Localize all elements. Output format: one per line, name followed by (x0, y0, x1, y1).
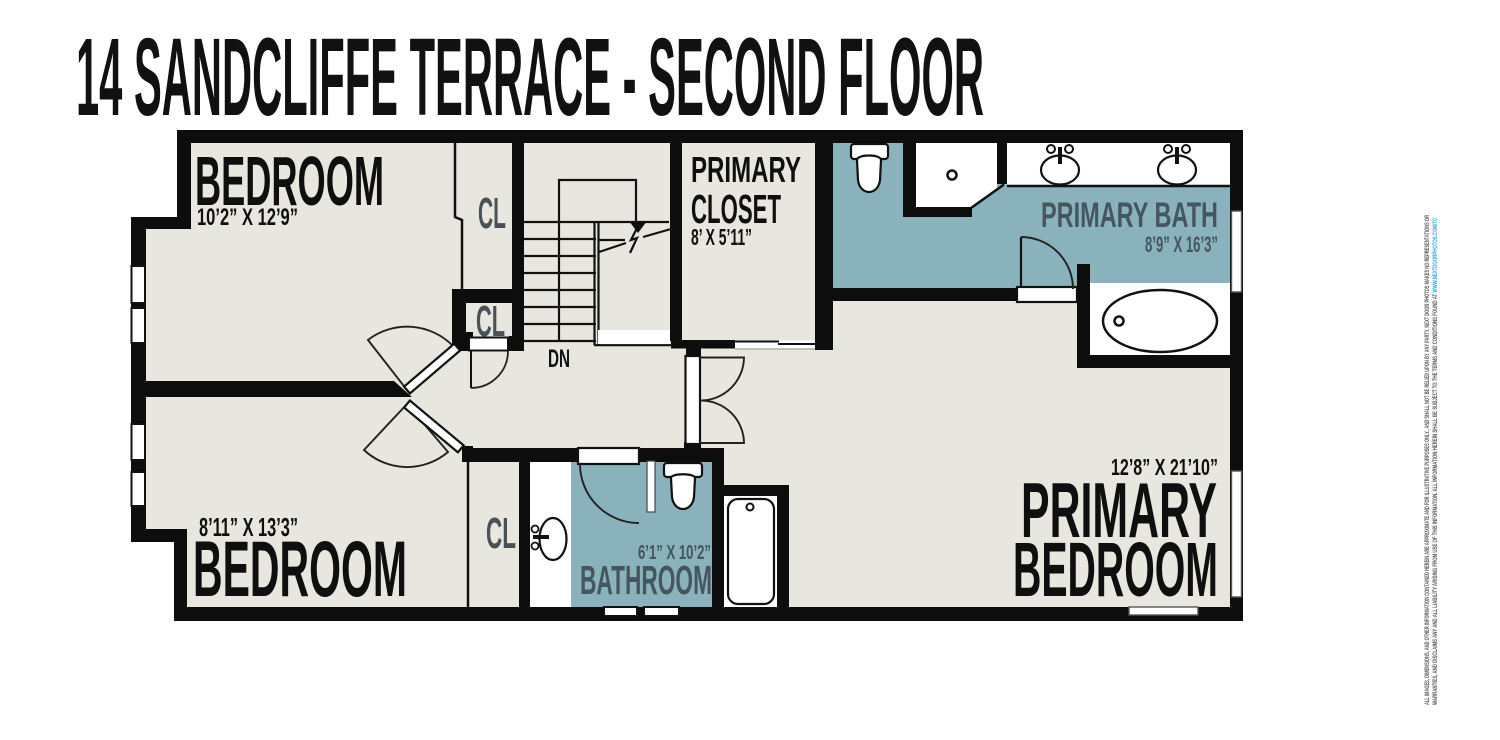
svg-text:CL: CL (478, 189, 506, 238)
svg-text:BEDROOM: BEDROOM (1013, 527, 1218, 613)
svg-text:CL: CL (476, 297, 505, 346)
svg-text:14 SANDCLIFFE TERRACE - SECOND: 14 SANDCLIFFE TERRACE - SECOND FLOOR (76, 16, 984, 139)
svg-text:8’9” X 16’3”: 8’9” X 16’3” (1145, 232, 1218, 257)
svg-text:BATHROOM: BATHROOM (580, 557, 712, 603)
svg-text:BEDROOM: BEDROOM (193, 524, 407, 613)
svg-text:PRIMARY: PRIMARY (691, 149, 801, 190)
svg-text:CL: CL (486, 509, 516, 558)
svg-text:DN: DN (548, 345, 570, 373)
svg-text:PRIMARY BATH: PRIMARY BATH (1041, 196, 1218, 235)
svg-text:10’2” X 12’9”: 10’2” X 12’9” (197, 204, 298, 231)
svg-text:ALL IMAGES, DIMENSIONS, AND OT: ALL IMAGES, DIMENSIONS, AND OTHER INFORM… (1425, 215, 1431, 705)
svg-text:WARRANTIES, AND DISCLAIMS ANY: WARRANTIES, AND DISCLAIMS ANY AND ALL LI… (1433, 218, 1439, 705)
svg-text:8’ X 5’11”: 8’ X 5’11” (691, 224, 752, 250)
